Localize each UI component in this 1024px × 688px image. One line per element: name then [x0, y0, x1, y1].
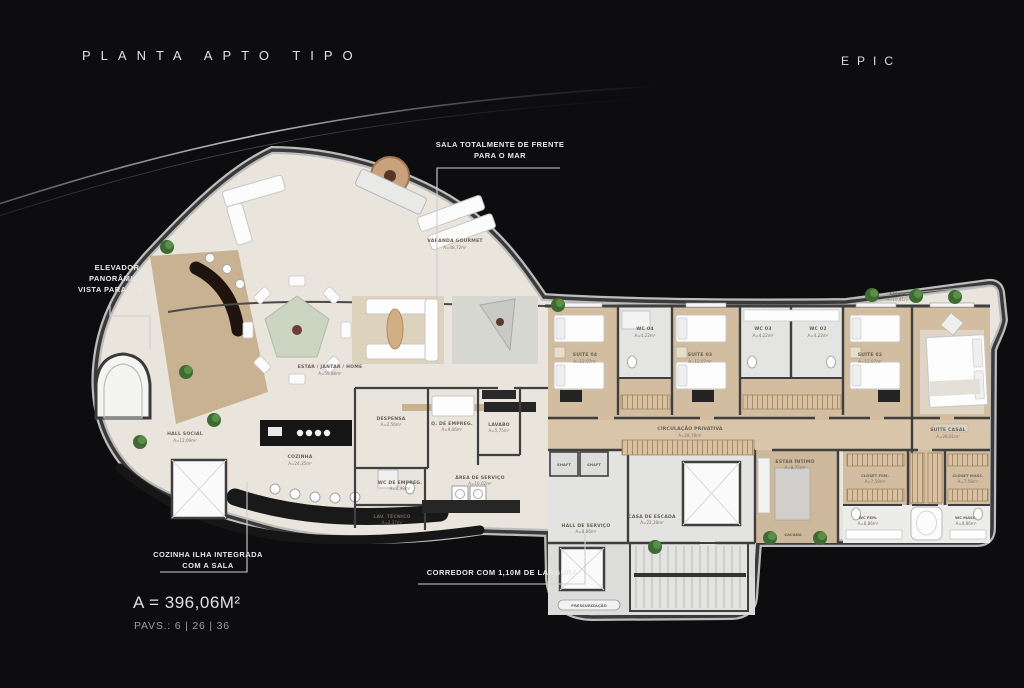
room-area: A=7,58m²: [958, 479, 979, 484]
wardrobe-2: [743, 395, 841, 409]
callout-line: COM A SALA: [128, 561, 288, 572]
room-area: A=10,02m²: [468, 481, 492, 486]
room-label: WC 03: [754, 326, 771, 332]
room-area: A=8,75m²: [785, 465, 806, 470]
room-area: A=10,81m²: [886, 297, 910, 302]
plant-icon: [160, 240, 174, 254]
pavements-value: PAVS.: 6 | 26 | 36: [134, 620, 230, 632]
room-label: WC MASC.: [955, 515, 978, 520]
plant-icon: [865, 288, 879, 302]
room-label: CLOSET FEM.: [861, 473, 890, 478]
washer: [452, 486, 468, 502]
corridor-cabinets: [622, 440, 754, 455]
room-label: SACADA: [784, 532, 802, 537]
room-area: A=24,35m²: [288, 461, 312, 466]
room-label: WC FEM.: [859, 515, 878, 520]
room-label: SACADA: [889, 291, 907, 296]
plant-icon: [763, 531, 777, 545]
service-counter: [422, 500, 520, 513]
dryer: [470, 486, 486, 502]
callout-line: PANORÂMICO: [62, 274, 172, 285]
room-area: A=4,22m²: [635, 333, 656, 338]
room-area: A=8,06m²: [576, 529, 597, 534]
room-label: CIRCULAÇÃO PRIVATIVA: [657, 425, 723, 432]
room-label: CLOSET MASC.: [952, 473, 984, 478]
room-area: A=22,28m²: [640, 520, 664, 525]
suite-02-desk: [878, 390, 900, 402]
room-label: WC 02: [809, 326, 826, 332]
suite-04-desk: [560, 390, 582, 402]
plant-icon: [948, 290, 962, 304]
room-area: A=12,07m²: [688, 359, 712, 364]
room-area: A=4,22m²: [808, 333, 829, 338]
staircase: [630, 543, 748, 611]
room-area: A=48,72m²: [443, 245, 467, 250]
room-area: A=8,86m²: [858, 521, 879, 526]
room-label: COZINHA: [288, 454, 313, 460]
tv-cabinet: [484, 402, 536, 412]
room-label: SHAFT: [557, 462, 571, 467]
plant-icon: [179, 365, 193, 379]
callout-line: CORREDOR COM 1,10M DE LARGURA: [410, 568, 595, 579]
room-label: WC 04: [636, 326, 653, 332]
master-bed: [926, 335, 988, 408]
room-area: A=7,58m²: [865, 479, 886, 484]
room-label: VARANDA GOURMET: [427, 238, 483, 244]
total-area-value: A = 396,06M²: [133, 593, 241, 613]
room-area: A=12,09m²: [173, 438, 197, 443]
room-label: ESTAR / JANTAR / HOME: [298, 364, 363, 370]
room-area: A=9,06m²: [442, 427, 463, 432]
room-label: ÁREA DE SERVIÇO: [455, 474, 504, 481]
room-area: A=2,98m²: [390, 486, 411, 491]
callout-line: ELEVADOR: [62, 263, 172, 274]
plant-icon: [207, 413, 221, 427]
plant-icon: [813, 531, 827, 545]
maid-bed: [432, 396, 474, 416]
room-area: A=4,22m²: [753, 333, 774, 338]
plant-icon: [133, 435, 147, 449]
room-area: A=2,56m²: [381, 422, 402, 427]
corridor-floor: [548, 420, 990, 450]
floor-plan-canvas: VARANDA GOURMET A=48,72m² ESTAR / JANTAR…: [0, 0, 1024, 688]
room-area: A=28,78m²: [678, 433, 702, 438]
sala-callout: SALA TOTALMENTE DE FRENTE PARA O MAR: [405, 140, 595, 162]
room-label: PRESSURIZAÇÃO: [571, 603, 607, 608]
elevator-callout: ELEVADOR PANORÂMICO VISTA PARA O MAR: [62, 263, 172, 296]
room-area: A=28,81m²: [936, 434, 960, 439]
room-area: A=12,07m²: [858, 359, 882, 364]
wardrobe-1: [621, 395, 670, 409]
estar-intimo-rug: [775, 468, 810, 520]
floor-plan-page: PLANTA APTO TIPO EPIC: [0, 0, 1024, 688]
room-area: A=59,86m²: [318, 371, 342, 376]
plant-icon: [909, 289, 923, 303]
callout-line: PARA O MAR: [405, 151, 595, 162]
room-area: A=12,07m²: [573, 359, 597, 364]
room-area: A=5,75m²: [489, 428, 510, 433]
room-area: A=8,86m²: [956, 521, 977, 526]
room-label: HALL SOCIAL: [167, 431, 203, 437]
callout-line: SALA TOTALMENTE DE FRENTE: [405, 140, 595, 151]
corredor-callout: CORREDOR COM 1,10M DE LARGURA: [410, 568, 595, 579]
suite-03-desk: [692, 390, 714, 402]
plant-icon: [551, 298, 565, 312]
plant-icon: [648, 540, 662, 554]
cozinha-callout: COZINHA ILHA INTEGRADA COM A SALA: [128, 550, 288, 572]
callout-line: VISTA PARA O MAR: [62, 285, 172, 296]
room-area: A=2,37m²: [382, 520, 403, 525]
callout-line: COZINHA ILHA INTEGRADA: [128, 550, 288, 561]
room-label: SHAFT: [587, 462, 601, 467]
